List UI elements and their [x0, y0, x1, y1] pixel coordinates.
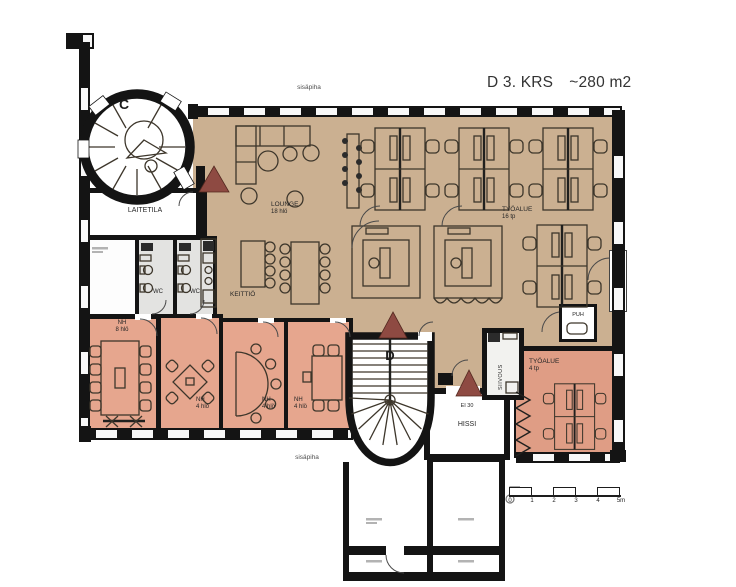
room-label-nh-4a: NH4 hlö: [196, 397, 209, 411]
room-label-wc-right: WC: [190, 289, 200, 296]
room-wc-right: [173, 236, 217, 318]
stairwell-d-label: D: [385, 348, 394, 364]
wall-window-top: [191, 106, 622, 117]
room-puh-booth: [559, 304, 597, 342]
wall-basement-bottom: [343, 572, 505, 581]
room-label-siivous: SIIVOUS: [498, 342, 505, 390]
wall-window-right: [612, 110, 625, 462]
plan-title: D 3. KRS ~280 m2: [487, 74, 631, 92]
room-wc-left: [135, 236, 177, 318]
scale-bar-segment: [509, 487, 532, 496]
room-label-tyoalue-16: TYÖALUE16 tp: [502, 206, 532, 221]
room-nh-4a: [157, 314, 223, 434]
wall-stair-c-connector: [196, 166, 205, 240]
scale-bar-segment: [597, 487, 620, 496]
open-area-zone: [193, 108, 622, 350]
room-label-lounge: LOUNGE18 hlö: [271, 201, 298, 216]
door-gap-nh8: [135, 314, 151, 320]
hissi-fire-rating-label: EI 30: [461, 403, 474, 410]
room-label-wc-left: WC: [153, 289, 163, 296]
room-label-keittio: KEITTIÖ: [230, 291, 255, 299]
room-label-hissi: HISSI: [458, 421, 476, 429]
wall-basement-mid-h: [343, 546, 505, 555]
wall-window-left: [79, 42, 90, 434]
scale-tick: 2: [552, 498, 555, 504]
scale-tick: 1: [530, 498, 533, 504]
room-basement-mid: [427, 456, 505, 576]
door-gap-nh4a: [196, 314, 212, 319]
door-gap-nh4c: [330, 318, 346, 323]
scale-tick: 5m: [617, 498, 625, 504]
room-basement-left: [343, 462, 433, 576]
wall-window-bottom-right: [516, 452, 620, 463]
scale-bar-segment: [553, 487, 576, 496]
wall-corner-tl: [188, 104, 198, 119]
plan-title-name: D 3. KRS: [487, 74, 553, 92]
door-gap-nh4b: [258, 318, 274, 323]
scale-tick: 3: [574, 498, 577, 504]
room-storage: [83, 236, 139, 318]
courtyard-label-bottom: sisäpiha: [295, 454, 319, 462]
door-gap-hissi: [446, 386, 480, 394]
wall-corner-br: [610, 450, 626, 462]
floor-plan: D 3. KRS ~280 m2 sisäpiha sisäpiha C D L…: [0, 0, 736, 587]
room-label-puh: PUH: [572, 312, 584, 319]
stairwell-c: [78, 92, 194, 200]
room-nh-4b: [219, 318, 288, 434]
scale-tick: 0: [508, 498, 511, 504]
room-label-nh-4b: NH4 hlö: [262, 397, 275, 411]
room-label-nh-8: NH8 hlö: [115, 320, 128, 334]
plan-title-area: ~280 m2: [569, 74, 631, 92]
wall-corner-bl: [79, 426, 91, 442]
door-gap-basement: [386, 546, 404, 555]
room-label-laitetila: LAITETILA: [128, 207, 162, 215]
wall-stub-hall: [438, 373, 453, 385]
courtyard-label-top: sisäpiha: [297, 84, 321, 92]
wall-window-bottom-left: [79, 428, 353, 440]
room-nh-4c: [284, 318, 353, 434]
room-label-nh-4c: NH4 hlö: [294, 397, 307, 411]
room-label-tyoalue-4: TYÖALUE4 tp: [529, 358, 559, 373]
stairwell-c-label: C: [119, 96, 129, 113]
scale-tick: 4: [596, 498, 599, 504]
